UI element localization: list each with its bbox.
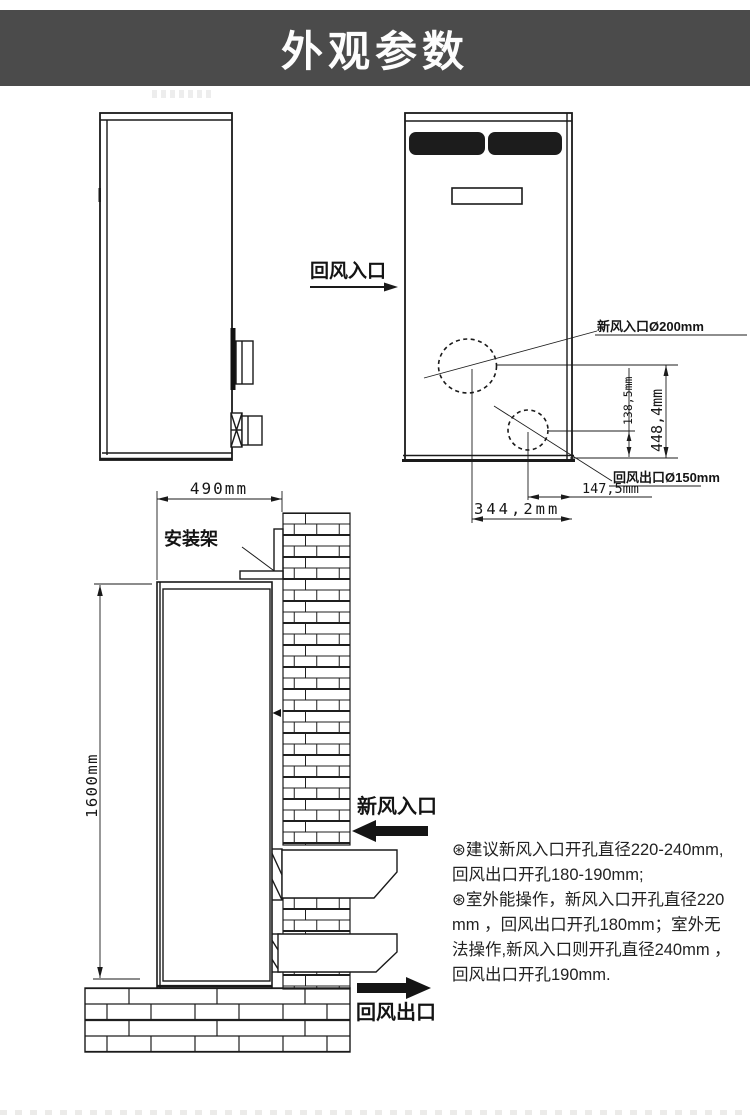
fresh-air-inlet-label: 新风入口: [357, 794, 437, 818]
page-title: 外观参数: [281, 18, 469, 79]
note-line: 法操作,新风入口则开孔直径240mm ，: [452, 938, 727, 963]
note-line: ⊛室外能操作，新风入口开孔直径220: [452, 888, 727, 913]
side-view-body: [100, 113, 232, 460]
wall-bricks: [283, 513, 350, 989]
side-view-upper-duct-stub: [231, 328, 254, 390]
unit-front-view: [402, 113, 575, 461]
return-air-outlet-label: 回风出口: [356, 1001, 436, 1024]
mounting-bracket-label: 安装架: [164, 528, 218, 549]
cropped-text-remnant: [0, 1110, 750, 1115]
arrow-left-icon: [352, 820, 428, 842]
display-panel: [452, 188, 522, 204]
dim-138-5: 138,5mm: [621, 376, 635, 425]
dim-448-4: 448,4mm: [648, 389, 666, 452]
faint-text-remnant: [152, 90, 212, 98]
return-air-inlet-label: 回风入口: [310, 260, 386, 282]
dim-344-2: 344,2mm: [474, 500, 560, 518]
dim-490: 490mm: [190, 479, 248, 498]
installation-view: 490mm 安装架: [83, 479, 437, 1052]
note-line: 回风出口开孔190mm.: [452, 963, 727, 988]
height-dimension: 1600mm: [83, 584, 152, 979]
floor-bricks: [85, 988, 350, 1052]
note-line: mm ，回风出口开孔180mm；室外无: [452, 913, 727, 938]
fresh-air-duct: [270, 849, 397, 900]
note-line: ⊛建议新风入口开孔直径220-240mm,: [452, 838, 727, 863]
arrow-right-icon: [384, 283, 398, 292]
return-air-outlet-callout: 回风出口: [356, 977, 436, 1024]
fresh-air-inlet-callout: 新风入口: [352, 794, 437, 842]
air-grille-left: [409, 132, 485, 155]
fresh-air-hole-label: 新风入口Ø200mm: [597, 319, 704, 334]
side-view-lower-duct-stub: [231, 413, 262, 447]
note-line: 回风出口开孔180-190mm;: [452, 863, 727, 888]
title-bar: 外观参数: [0, 10, 750, 86]
unit-side-view: [99, 113, 263, 460]
return-air-duct: [268, 934, 397, 972]
arrow-right-bold-icon: [357, 977, 431, 999]
mounting-bracket-callout: 安装架: [164, 528, 283, 579]
dim-1600: 1600mm: [83, 753, 101, 818]
return-air-inlet-callout: 回风入口: [310, 260, 398, 292]
air-grille-right: [488, 132, 562, 155]
unit-install-body: [157, 582, 281, 988]
installation-notes: ⊛建议新风入口开孔直径220-240mm, 回风出口开孔180-190mm; ⊛…: [452, 838, 727, 988]
dim-147-5: 147,5mm: [582, 481, 639, 497]
